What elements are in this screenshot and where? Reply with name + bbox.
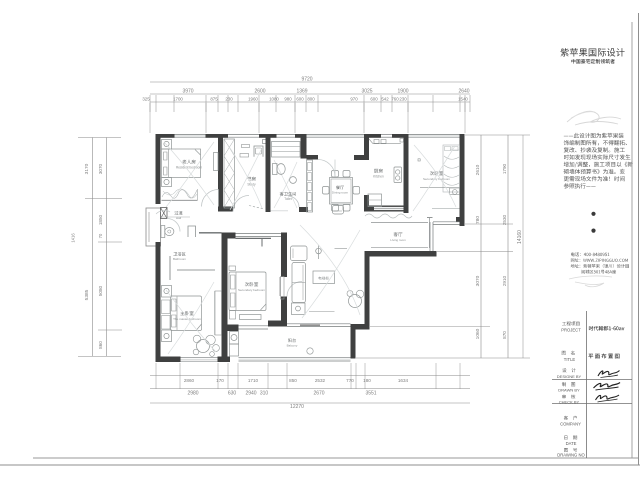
svg-text:Kitchen: Kitchen: [373, 175, 384, 179]
svg-text:600: 600: [296, 97, 304, 102]
svg-text:DRAWING NO: DRAWING NO: [557, 453, 585, 458]
svg-text:3970: 3970: [182, 88, 193, 94]
svg-text:860: 860: [98, 341, 103, 349]
svg-text:542: 542: [381, 97, 389, 102]
svg-text:980: 980: [284, 97, 292, 102]
svg-text:70: 70: [98, 233, 103, 238]
svg-text:970: 970: [350, 97, 358, 102]
svg-text:3070: 3070: [475, 275, 481, 286]
svg-text:1634: 1634: [398, 378, 409, 383]
svg-text:5385: 5385: [84, 289, 90, 300]
svg-text:Bathroom: Bathroom: [173, 257, 187, 261]
svg-text:2860: 2860: [184, 378, 195, 383]
svg-text:Hall: Hall: [176, 216, 182, 220]
svg-text:630: 630: [228, 391, 237, 397]
svg-text:DRAWN BY: DRAWN BY: [558, 388, 580, 393]
svg-text:3170: 3170: [84, 163, 90, 174]
svg-text:TITLE: TITLE: [564, 357, 576, 362]
svg-text:770: 770: [346, 378, 354, 383]
svg-text:2940: 2940: [245, 391, 256, 397]
svg-text:2980: 2980: [187, 391, 198, 397]
svg-text:2640: 2640: [458, 88, 469, 94]
svg-text:2600: 2600: [254, 88, 265, 94]
svg-text:230: 230: [225, 97, 233, 102]
svg-text:2610: 2610: [475, 164, 481, 175]
svg-text:Toilet: Toilet: [284, 197, 292, 201]
svg-text:Balcony: Balcony: [287, 344, 298, 348]
svg-text:1900: 1900: [397, 88, 408, 94]
svg-text:Resident bedroom: Resident bedroom: [176, 166, 202, 170]
svg-text:1700: 1700: [173, 97, 183, 102]
svg-text:CHECK BY: CHECK BY: [559, 399, 580, 404]
svg-text:310: 310: [260, 391, 269, 397]
svg-text:230: 230: [399, 97, 407, 102]
svg-text:1060: 1060: [475, 328, 481, 339]
svg-text:DESIGNE BY: DESIGNE BY: [557, 374, 582, 379]
svg-text:600: 600: [370, 97, 378, 102]
svg-text:COMPANY: COMPANY: [560, 421, 581, 426]
svg-text:1080: 1080: [269, 97, 279, 102]
svg-text:3025: 3025: [361, 88, 372, 94]
svg-text:Living room: Living room: [390, 238, 406, 242]
svg-text:1960: 1960: [248, 97, 258, 102]
svg-text:780: 780: [475, 216, 481, 224]
svg-text:1369: 1369: [296, 88, 307, 94]
svg-text:PROJECT: PROJECT: [561, 327, 581, 332]
svg-text:14160: 14160: [517, 230, 523, 244]
svg-text:DATE: DATE: [566, 441, 577, 446]
svg-text:850: 850: [289, 378, 297, 383]
svg-text:760: 760: [391, 97, 399, 102]
svg-text:800: 800: [307, 97, 315, 102]
svg-text:2532: 2532: [315, 378, 326, 383]
svg-text:325: 325: [142, 97, 150, 102]
svg-text:12270: 12270: [290, 404, 304, 410]
svg-text:2910: 2910: [502, 275, 507, 286]
svg-text:2530: 2530: [502, 214, 507, 225]
svg-text:1790: 1790: [502, 163, 507, 174]
svg-text:180: 180: [363, 378, 371, 383]
svg-text:5080: 5080: [98, 285, 103, 296]
svg-text:9720: 9720: [301, 77, 312, 83]
svg-text:2670: 2670: [313, 391, 324, 397]
svg-text:1710: 1710: [248, 378, 259, 383]
svg-text:1416: 1416: [71, 233, 76, 243]
svg-text:3070: 3070: [98, 163, 103, 174]
svg-text:Secondary bedroom: Secondary bedroom: [238, 288, 266, 292]
svg-text:875: 875: [210, 97, 218, 102]
svg-text:870: 870: [502, 331, 507, 339]
svg-text:1540: 1540: [458, 97, 468, 102]
svg-text:3551: 3551: [365, 391, 376, 397]
svg-text:1850: 1850: [98, 214, 103, 225]
svg-text:Dining room: Dining room: [332, 191, 349, 195]
svg-text:170: 170: [216, 378, 224, 383]
svg-text:Secondary bedroom: Secondary bedroom: [423, 177, 451, 181]
